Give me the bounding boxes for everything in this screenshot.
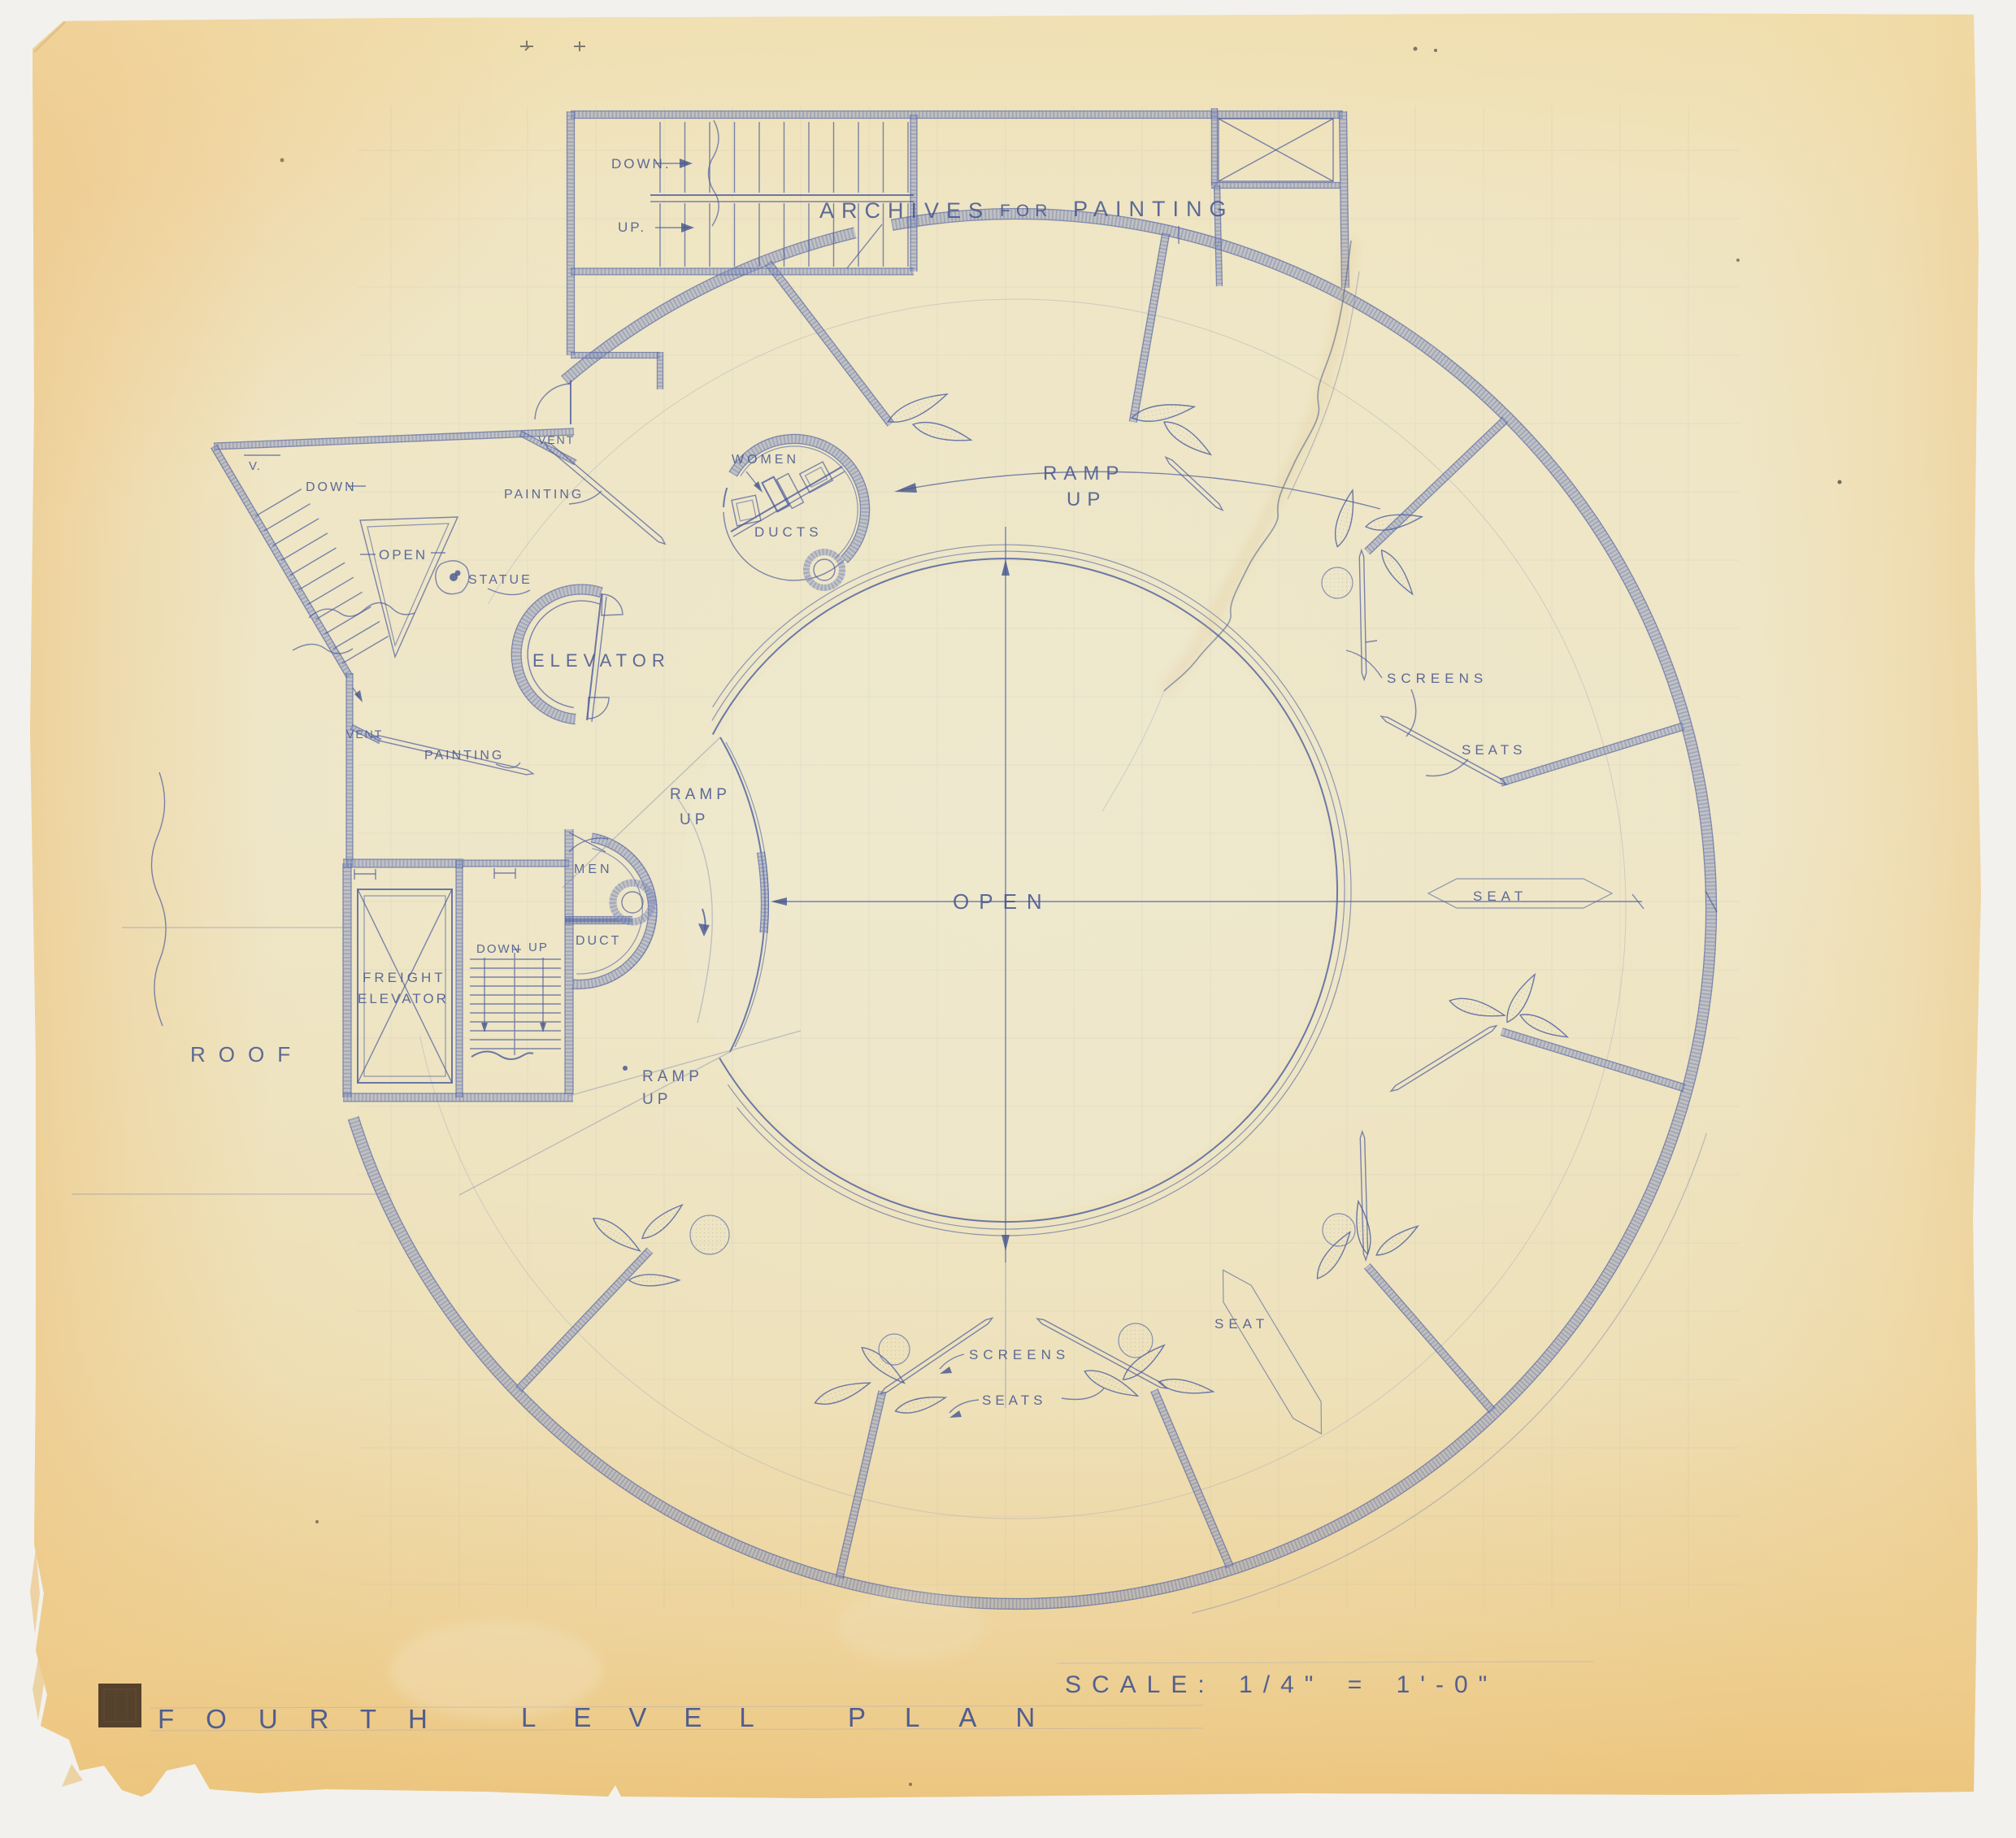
svg-text:UP: UP: [528, 941, 549, 954]
svg-text:STATUE: STATUE: [468, 573, 532, 587]
svg-text:UP.: UP.: [618, 219, 646, 235]
svg-text:PAINTING: PAINTING: [504, 488, 584, 502]
svg-text:LEVEL: LEVEL: [521, 1702, 792, 1732]
svg-text:FREIGHT: FREIGHT: [363, 970, 446, 985]
svg-text:SEAT: SEAT: [1473, 889, 1527, 904]
svg-text:DUCT: DUCT: [576, 934, 621, 948]
svg-text:SEATS: SEATS: [1462, 742, 1526, 758]
svg-text:VENT: VENT: [538, 433, 575, 446]
svg-text:WOMEN: WOMEN: [732, 453, 799, 467]
svg-text:PLAN: PLAN: [848, 1702, 1074, 1732]
svg-text:DUCTS: DUCTS: [754, 524, 823, 540]
svg-text:OPEN: OPEN: [379, 547, 428, 563]
svg-text:RAMP: RAMP: [1043, 463, 1125, 484]
svg-text:OPEN: OPEN: [953, 889, 1052, 914]
svg-text:PAINTING: PAINTING: [1073, 197, 1234, 221]
svg-text:SEATS: SEATS: [982, 1393, 1046, 1408]
svg-text:V.: V.: [249, 459, 261, 473]
svg-text:SCREENS: SCREENS: [969, 1347, 1070, 1362]
svg-text:SEAT: SEAT: [1214, 1316, 1269, 1332]
svg-text:FOR: FOR: [1000, 202, 1053, 220]
svg-text:UP: UP: [642, 1091, 671, 1108]
svg-text:UP: UP: [1067, 489, 1106, 511]
svg-text:PAINTING: PAINTING: [424, 749, 504, 763]
svg-text:VENT: VENT: [346, 728, 383, 741]
svg-text:ROOF: ROOF: [190, 1042, 303, 1067]
svg-text:UP: UP: [680, 811, 709, 828]
svg-text:ELEVATOR: ELEVATOR: [532, 650, 671, 671]
svg-text:FOURTH: FOURTH: [158, 1704, 459, 1734]
svg-text:ARCHIVES: ARCHIVES: [819, 198, 990, 223]
svg-text:MEN: MEN: [574, 863, 613, 876]
svg-text:SCALE: 1/4" = 1'-0": SCALE: 1/4" = 1'-0": [1065, 1671, 1497, 1698]
svg-text:ELEVATOR: ELEVATOR: [358, 991, 449, 1006]
svg-text:SCREENS: SCREENS: [1387, 671, 1488, 686]
svg-text:DOWN: DOWN: [306, 480, 357, 494]
